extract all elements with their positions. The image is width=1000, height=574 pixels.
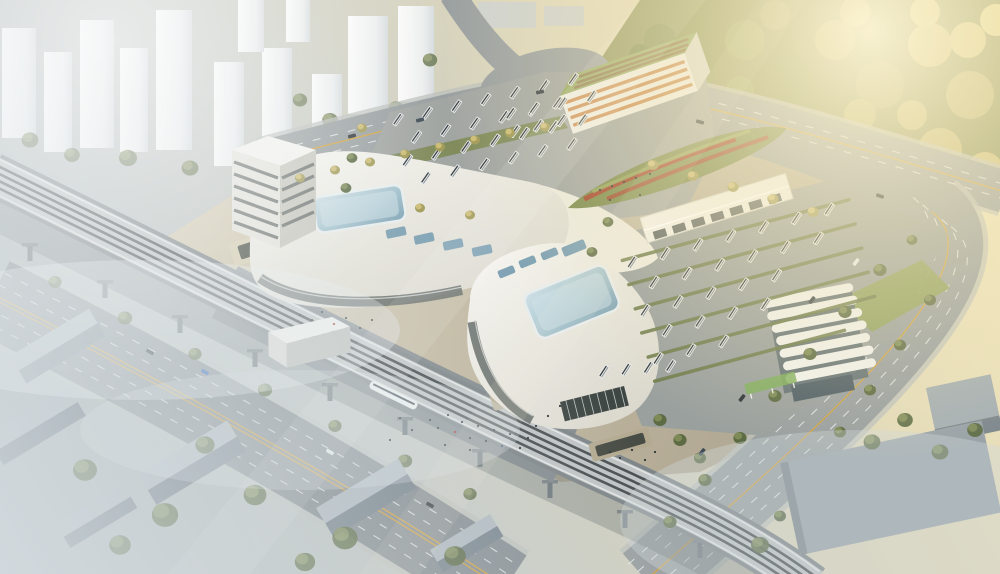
sun-glow (0, 0, 1000, 574)
atmosphere (0, 0, 1000, 574)
architectural-rendering (0, 0, 1000, 574)
